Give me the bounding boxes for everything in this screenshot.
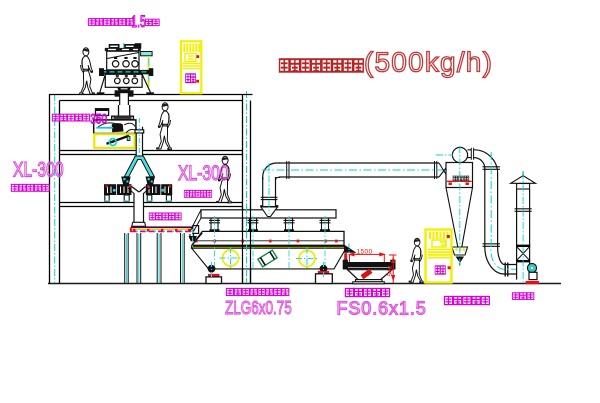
svg-text:548: 548	[387, 265, 394, 276]
svg-text:(500kg/h): (500kg/h)	[364, 47, 493, 78]
svg-text:1.5: 1.5	[131, 12, 145, 30]
svg-text:350: 350	[90, 111, 107, 127]
svg-text:FS0.6x1.5: FS0.6x1.5	[337, 299, 427, 319]
svg-text:XL-300: XL-300	[178, 161, 229, 185]
svg-text:1500: 1500	[357, 248, 373, 255]
svg-text:ZLG6x0.75: ZLG6x0.75	[225, 298, 292, 319]
svg-text:XL-300: XL-300	[13, 157, 64, 181]
